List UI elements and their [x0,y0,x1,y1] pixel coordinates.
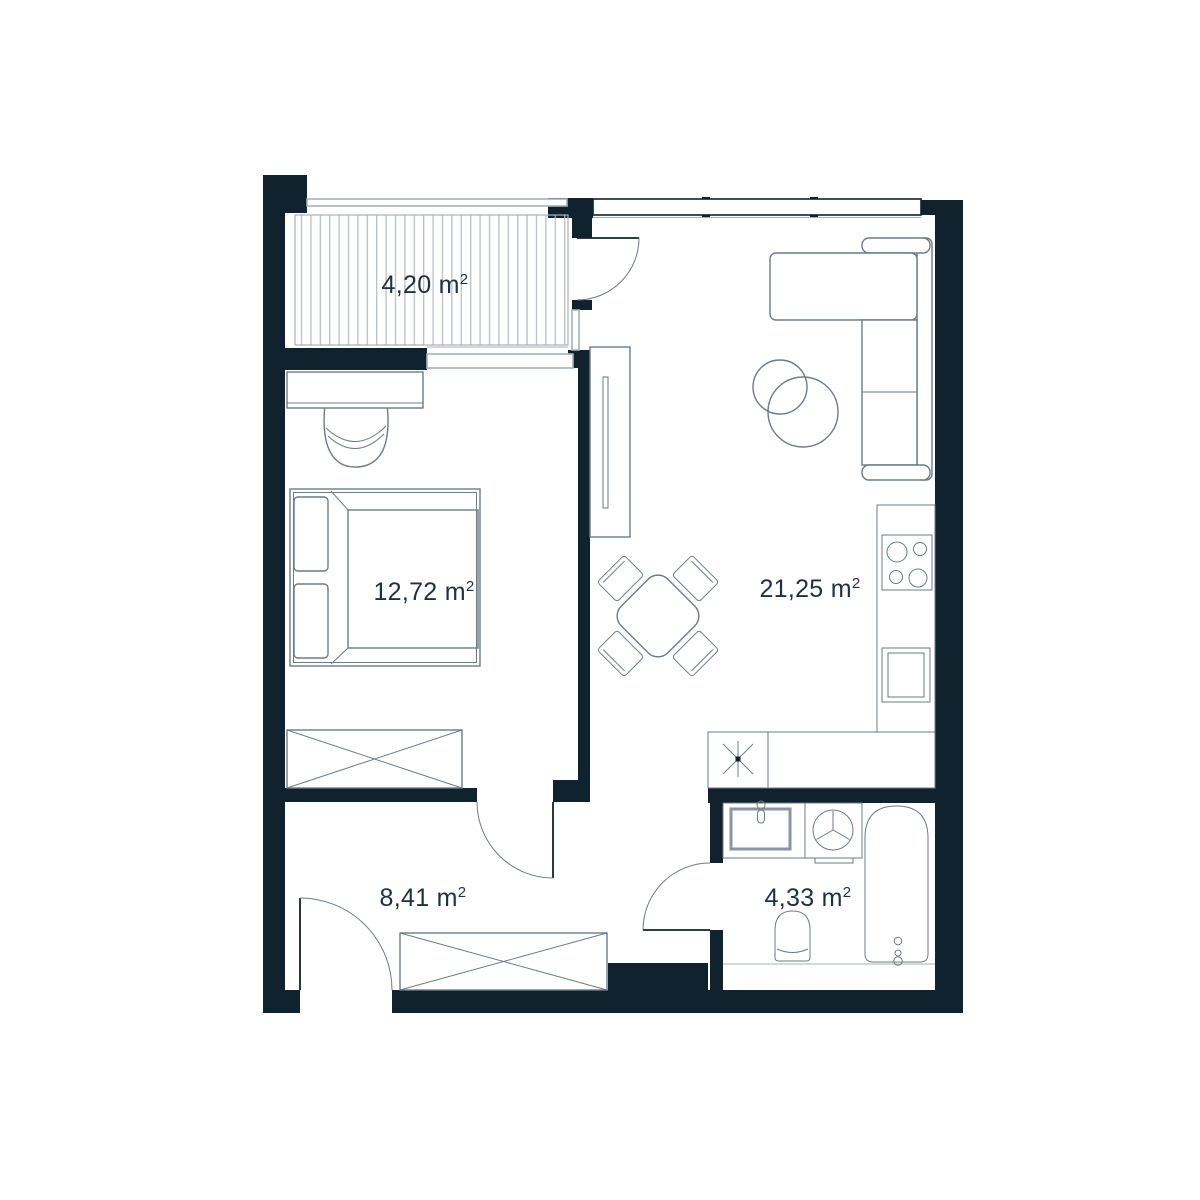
washing-machine [805,803,862,863]
room-area-label-balcony: 4,20 m2 [382,271,469,299]
toilet [775,911,810,961]
desk [287,372,423,408]
balcony-railing [307,199,567,206]
bedroom-window [427,354,573,368]
dining-set [563,521,753,711]
living-room-window [593,199,921,215]
balcony-door [577,238,639,300]
bedroom-door [477,802,553,878]
floor-plan-page: 4,20 m2 [0,0,1200,1200]
room-area-label-living: 21,25 m2 [759,575,860,603]
room-area-label-hallway: 8,41 m2 [380,884,467,912]
balcony-side-window [572,310,579,350]
room-hallway: 8,41 m2 [300,884,607,990]
entrance-door [300,898,392,990]
hallway-wardrobe [400,933,607,990]
room-area-label-bedroom: 12,72 m2 [373,578,474,606]
bathtub [865,806,928,965]
room-living-kitchen: 21,25 m2 [563,238,935,788]
bathroom-door [643,863,710,930]
floor-plan: 4,20 m2 [0,0,1200,1200]
hob [882,535,932,590]
desk-chair [324,404,388,467]
corner-sofa [770,238,932,480]
washbasin [723,801,805,858]
room-bathroom: 4,33 m2 [643,801,935,965]
room-bedroom: 12,72 m2 [287,372,553,878]
shelf [590,347,630,537]
room-area-label-bathroom: 4,33 m2 [765,884,852,912]
bedroom-wardrobe [287,730,462,788]
coffee-table [753,360,838,447]
